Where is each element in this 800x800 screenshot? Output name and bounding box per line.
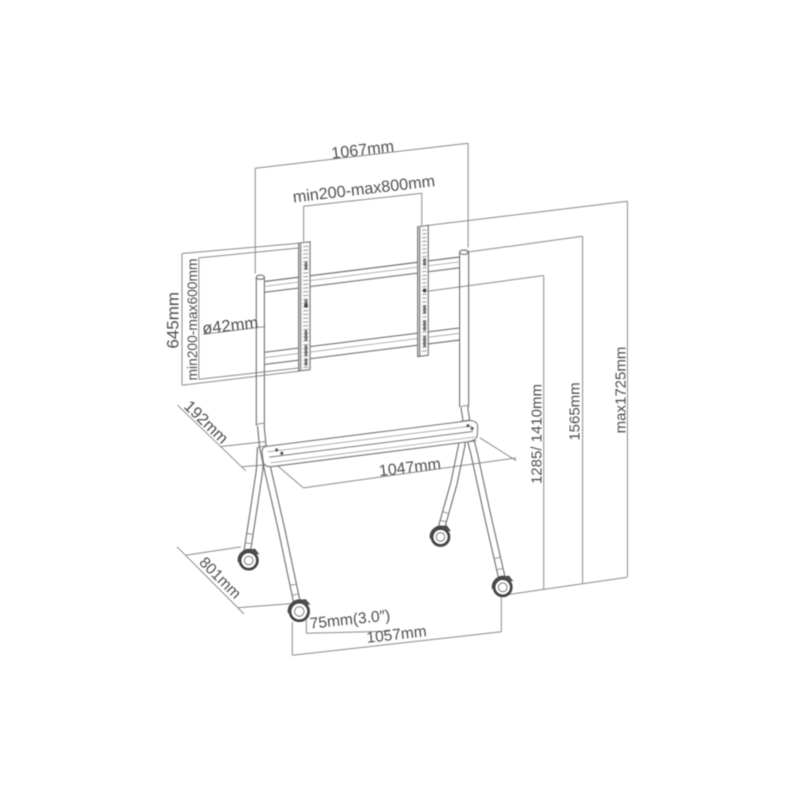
svg-text:645mm: 645mm xyxy=(164,292,183,349)
svg-text:min200-max600mm: min200-max600mm xyxy=(185,259,200,381)
svg-text:max1725mm: max1725mm xyxy=(612,347,629,434)
svg-text:1285/ 1410mm: 1285/ 1410mm xyxy=(529,384,546,484)
svg-text:1565mm: 1565mm xyxy=(567,382,584,440)
